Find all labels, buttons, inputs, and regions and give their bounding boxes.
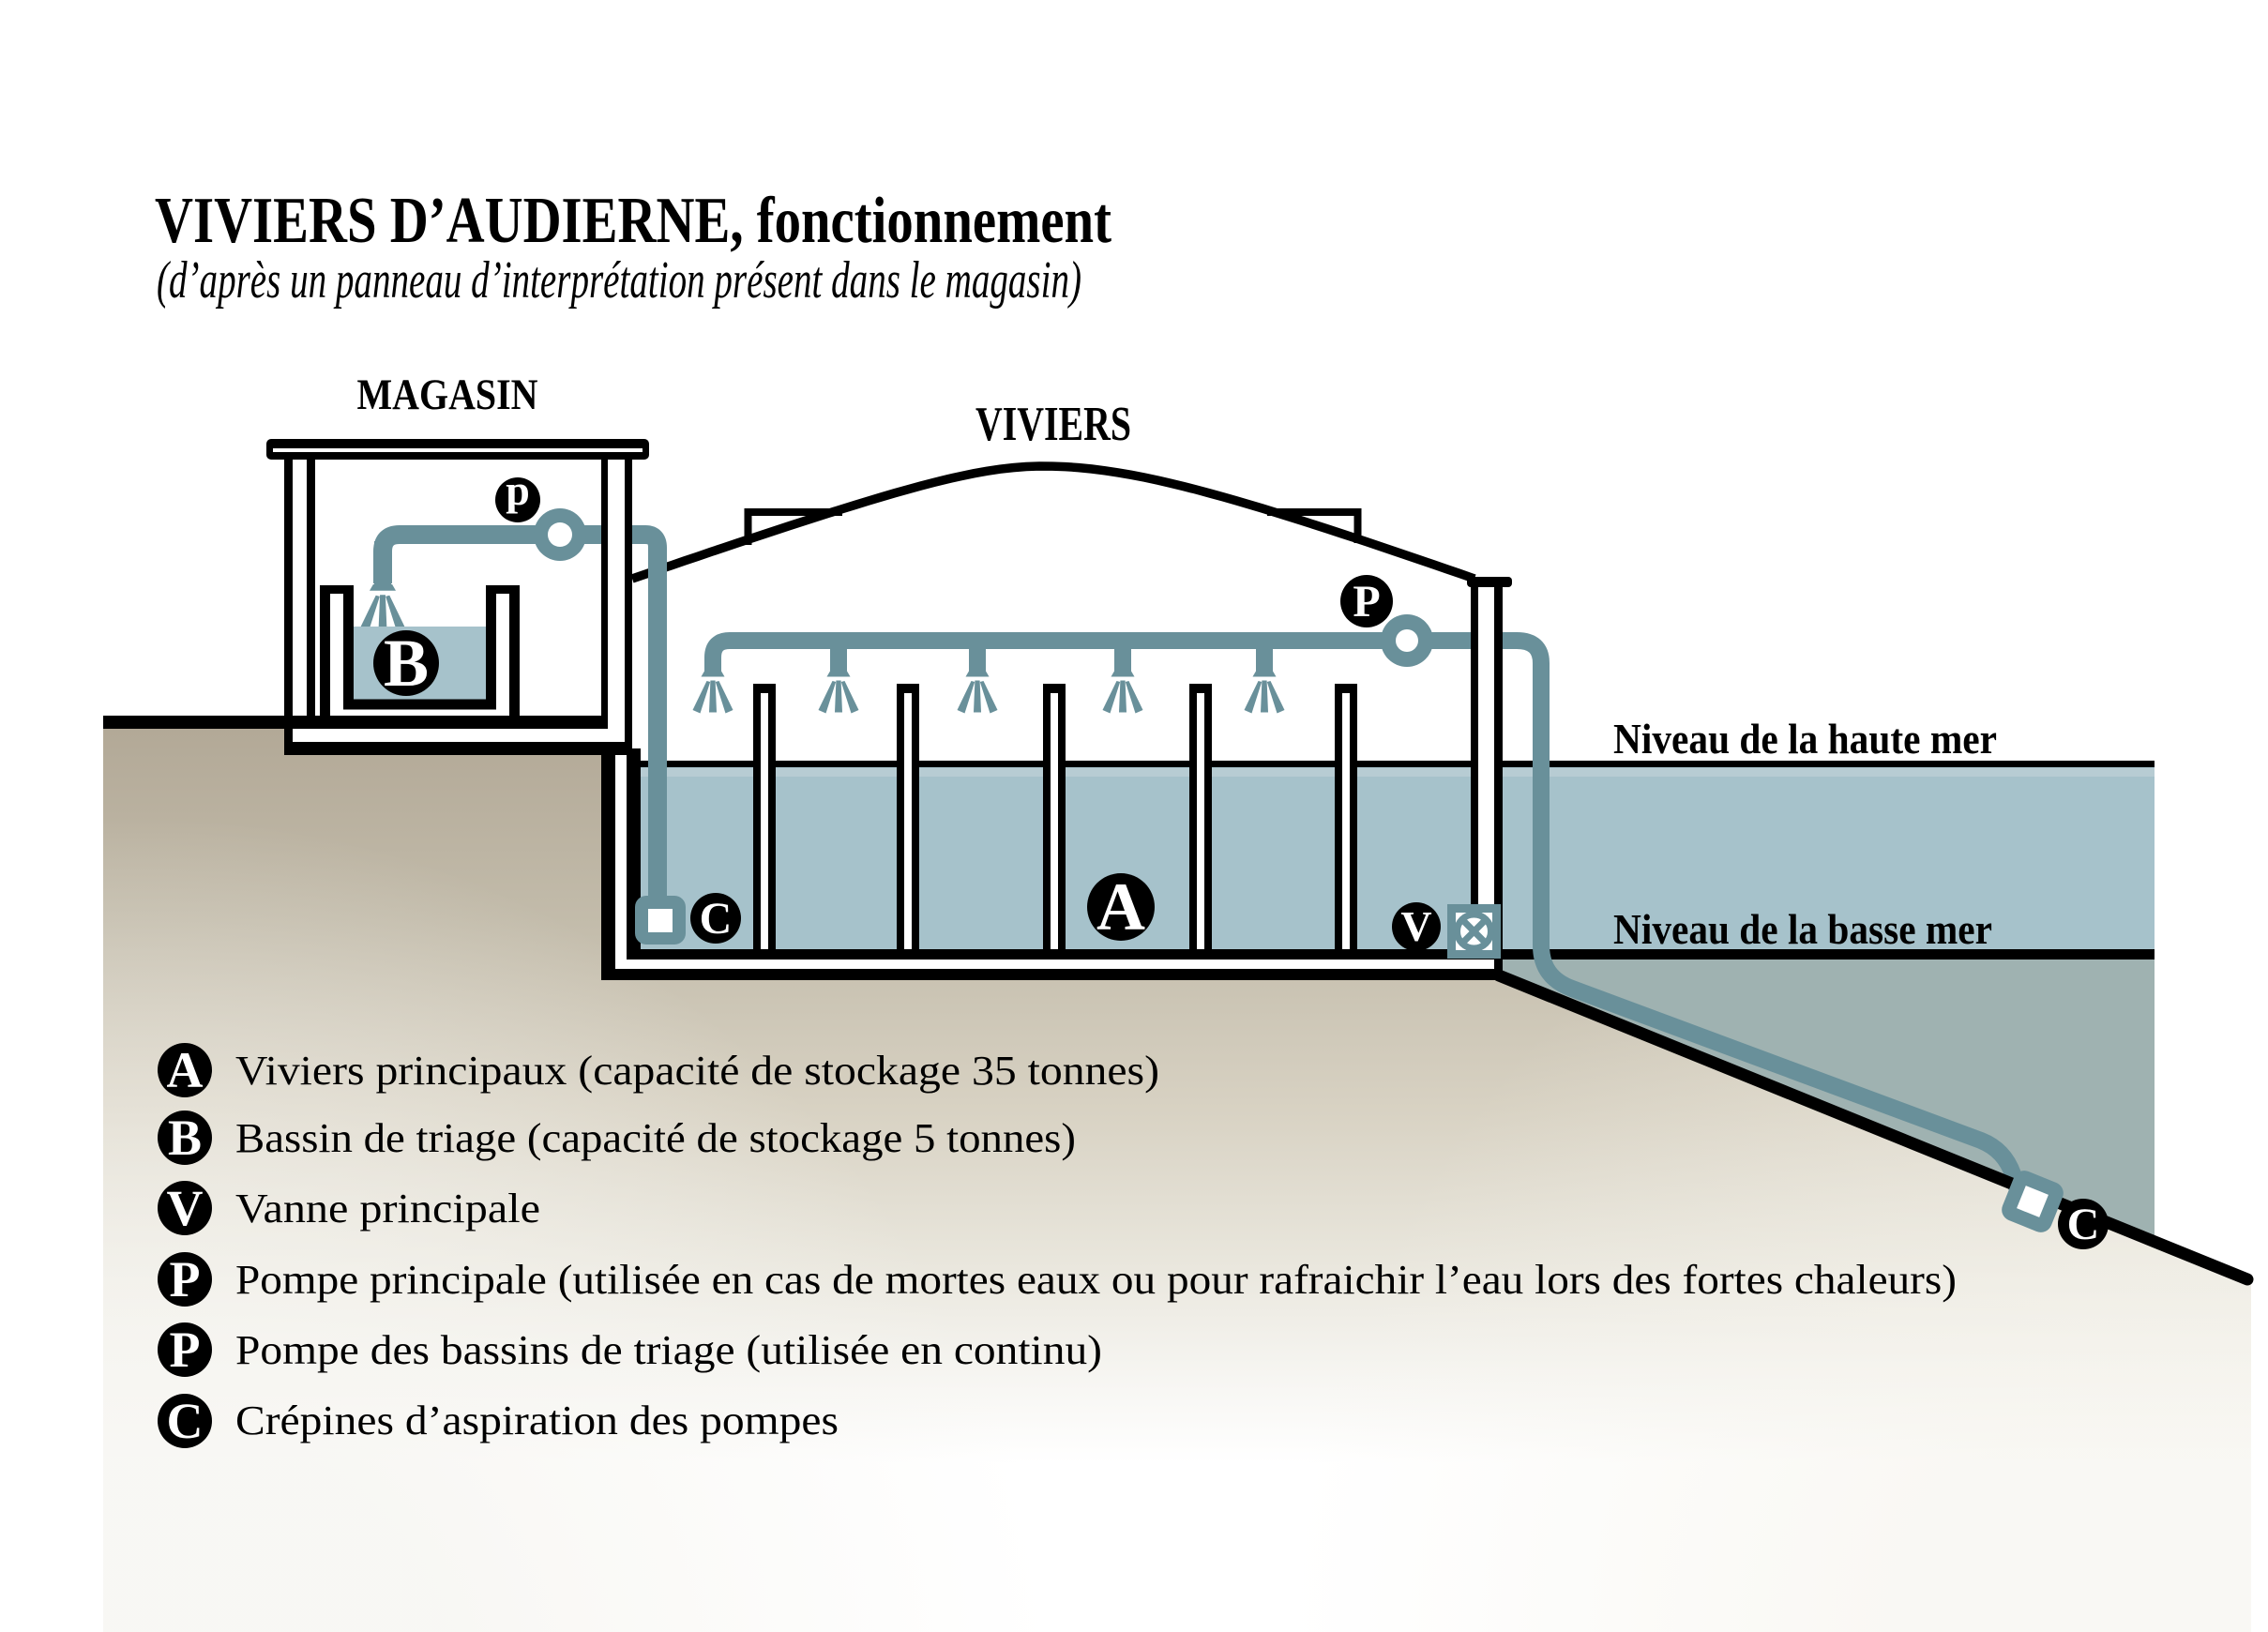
svg-text:Niveau de la basse mer: Niveau de la basse mer [1613,905,1992,953]
svg-text:Niveau de la haute mer: Niveau de la haute mer [1613,715,1997,763]
svg-text:A: A [167,1042,204,1098]
svg-text:VIVIERS: VIVIERS [975,398,1131,451]
svg-text:Pompe des bassins de triage (u: Pompe des bassins de triage (utilisée en… [235,1327,1102,1373]
svg-text:A: A [1096,869,1145,944]
svg-text:C: C [700,894,733,944]
svg-text:Crépines d’aspiration des pomp: Crépines d’aspiration des pompes [235,1398,839,1443]
svg-text:(d’après un panneau d’interpré: (d’après un panneau d’interprétation pré… [157,251,1081,310]
svg-text:C: C [167,1393,204,1449]
svg-text:V: V [1400,902,1431,950]
svg-text:VIVIERS D’AUDIERNE, fonctionne: VIVIERS D’AUDIERNE, fonctionnement [155,185,1111,257]
svg-text:Bassin de triage (capacité de: Bassin de triage (capacité de stockage 5… [235,1115,1076,1161]
svg-text:C: C [2067,1200,2100,1249]
svg-text:P: P [170,1322,201,1378]
svg-text:B: B [168,1110,202,1166]
svg-text:V: V [167,1180,204,1236]
svg-text:P: P [170,1251,201,1307]
svg-text:P: P [1353,577,1380,627]
svg-text:p: p [506,466,530,514]
svg-text:Pompe principale (utilisée en: Pompe principale (utilisée en cas de mor… [235,1257,1957,1303]
svg-text:Viviers principaux (capacité d: Viviers principaux (capacité de stockage… [235,1048,1159,1094]
svg-text:Vanne principale: Vanne principale [235,1186,540,1232]
svg-text:B: B [384,626,429,701]
svg-text:MAGASIN: MAGASIN [357,370,538,419]
